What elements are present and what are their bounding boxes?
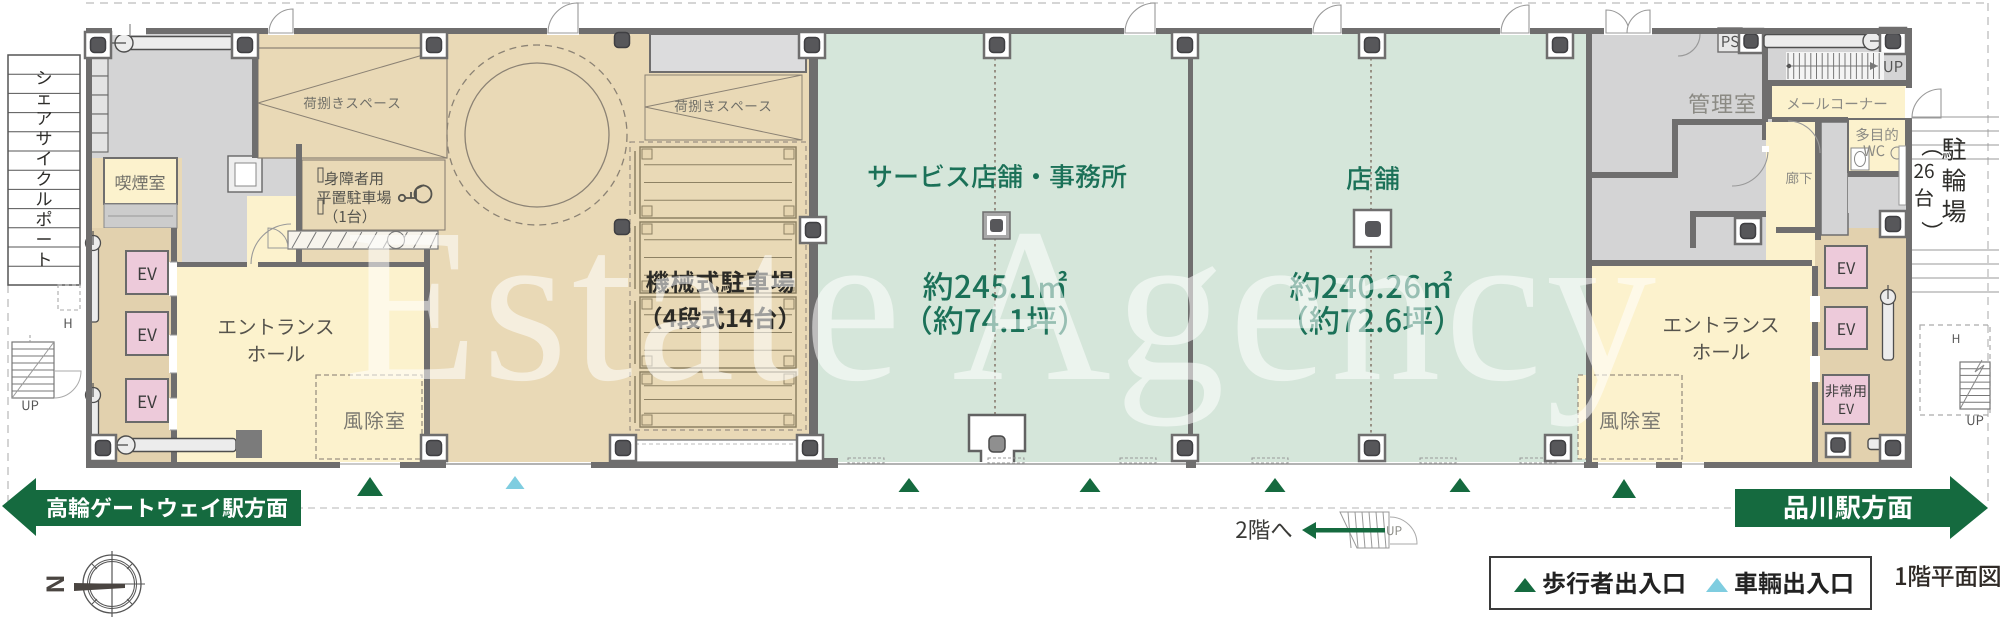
svg-text:N: N <box>42 575 70 593</box>
svg-text:Estate Agency: Estate Agency <box>344 183 1661 427</box>
